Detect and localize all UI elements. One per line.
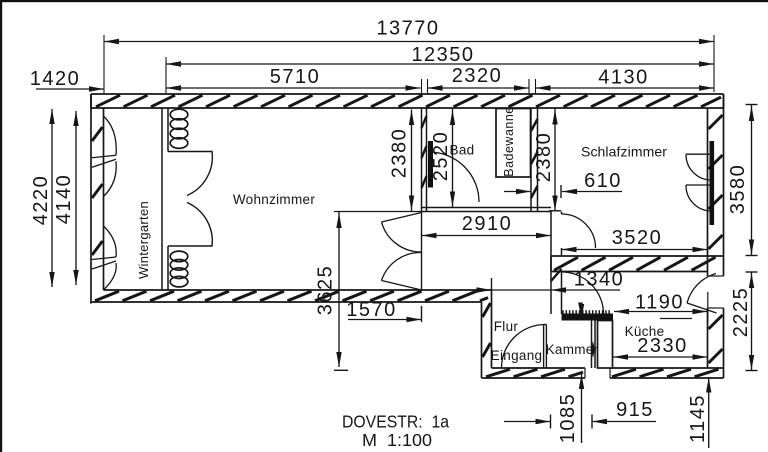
- svg-text:1340: 1340: [574, 269, 625, 291]
- svg-text:4220: 4220: [30, 175, 52, 226]
- svg-text:12350: 12350: [411, 44, 474, 66]
- svg-text:2380: 2380: [533, 132, 555, 183]
- svg-text:DOVESTR: 1a: DOVESTR: 1a: [342, 412, 449, 432]
- svg-text:2380: 2380: [389, 128, 411, 179]
- svg-text:Wohnzimmer: Wohnzimmer: [233, 192, 315, 207]
- svg-text:13770: 13770: [376, 18, 439, 40]
- svg-text:Eingang: Eingang: [491, 348, 543, 363]
- svg-text:2225: 2225: [730, 287, 752, 338]
- svg-text:2910: 2910: [462, 213, 513, 235]
- svg-text:3520: 3520: [612, 227, 663, 249]
- svg-text:Badewanne: Badewanne: [502, 106, 516, 177]
- svg-text:Kammer: Kammer: [546, 342, 599, 357]
- svg-text:1420: 1420: [30, 68, 81, 90]
- svg-text:4130: 4130: [598, 67, 649, 89]
- svg-text:1190: 1190: [635, 292, 684, 314]
- svg-text:4140: 4140: [53, 174, 75, 225]
- svg-text:1085: 1085: [557, 393, 579, 444]
- svg-text:3580: 3580: [727, 164, 749, 215]
- svg-text:915: 915: [616, 399, 654, 421]
- svg-text:Schlafzimmer: Schlafzimmer: [581, 144, 667, 160]
- svg-text:Flur: Flur: [494, 319, 519, 334]
- svg-text:1570: 1570: [346, 299, 397, 321]
- svg-text:Küche: Küche: [625, 324, 665, 339]
- svg-text:Bad: Bad: [450, 143, 475, 158]
- svg-text:1145: 1145: [687, 394, 709, 443]
- svg-text:610: 610: [584, 170, 622, 192]
- svg-text:Wintergarten: Wintergarten: [136, 201, 151, 279]
- svg-text:5710: 5710: [270, 66, 321, 88]
- svg-text:2320: 2320: [452, 65, 503, 87]
- svg-text:M 1:100: M 1:100: [362, 430, 432, 450]
- svg-text:3625: 3625: [315, 265, 337, 316]
